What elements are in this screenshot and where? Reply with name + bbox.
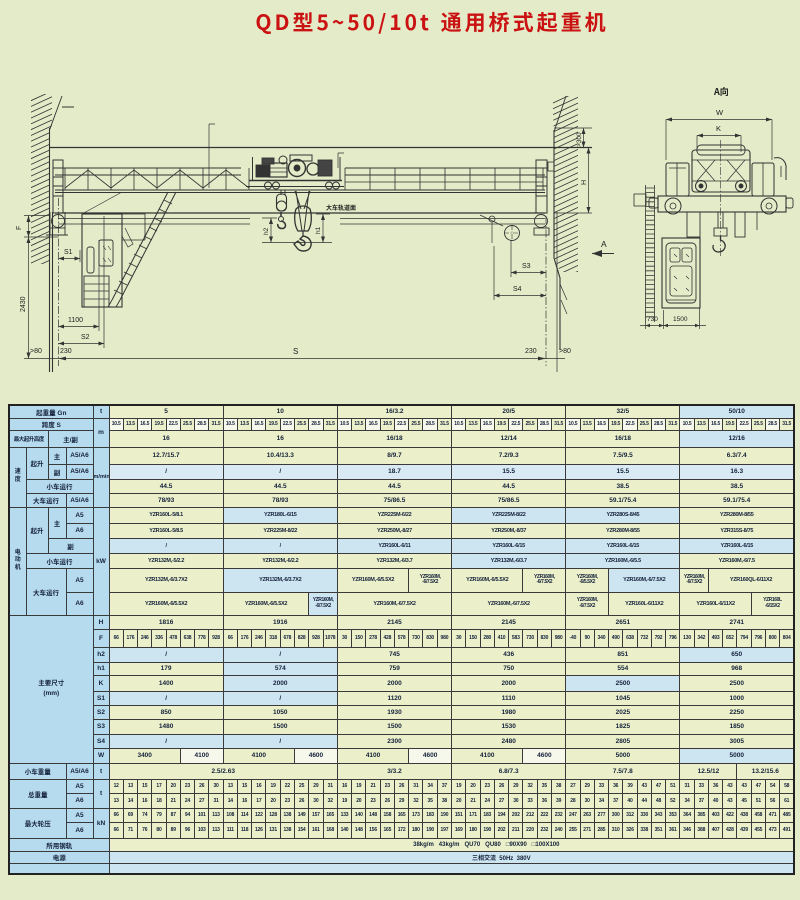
svg-text:F: F xyxy=(16,226,23,230)
svg-text:A: A xyxy=(601,239,607,249)
svg-text:大车轨道面: 大车轨道面 xyxy=(326,203,356,212)
svg-text:S3: S3 xyxy=(522,263,531,270)
svg-text:S: S xyxy=(293,347,298,356)
svg-text:230: 230 xyxy=(60,348,72,355)
svg-text:S1: S1 xyxy=(64,249,73,256)
svg-text:1500: 1500 xyxy=(673,316,688,323)
svg-text:h2: h2 xyxy=(263,227,270,235)
svg-text:>80: >80 xyxy=(559,348,571,355)
svg-text:S4: S4 xyxy=(513,286,522,293)
svg-text:A向: A向 xyxy=(713,85,729,98)
svg-text:230: 230 xyxy=(525,348,537,355)
svg-text:S2: S2 xyxy=(81,334,90,341)
svg-text:730: 730 xyxy=(647,316,658,323)
svg-text:1100: 1100 xyxy=(68,317,83,324)
svg-text:>300: >300 xyxy=(576,132,583,147)
svg-text:H: H xyxy=(581,180,588,185)
svg-text:>80: >80 xyxy=(30,348,42,355)
svg-text:K: K xyxy=(716,124,721,133)
svg-text:h1: h1 xyxy=(315,226,322,234)
svg-text:2430: 2430 xyxy=(20,296,27,312)
svg-text:W: W xyxy=(716,108,724,117)
